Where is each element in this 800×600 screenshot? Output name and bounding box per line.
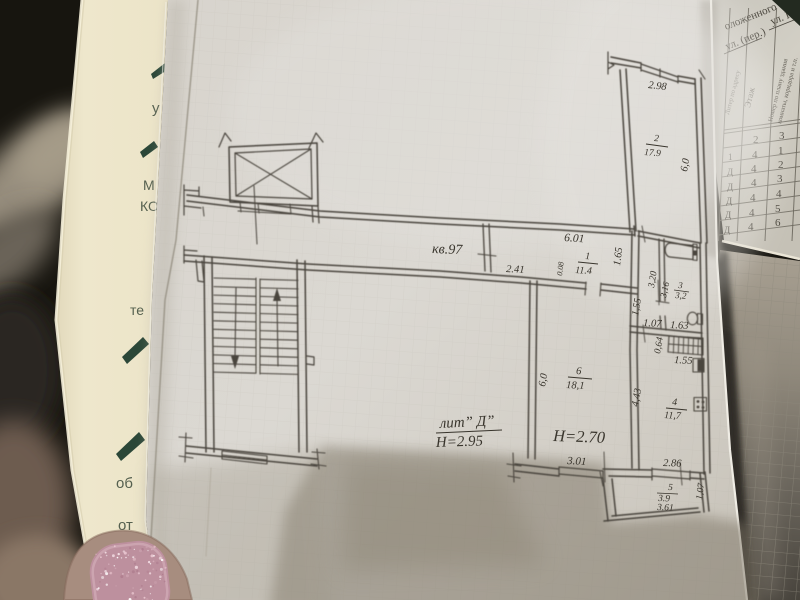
svg-text:1.55: 1.55 bbox=[674, 355, 693, 367]
svg-text:3.61: 3.61 bbox=[656, 503, 674, 514]
svg-text:17.9: 17.9 bbox=[644, 148, 662, 159]
svg-text:3,2: 3,2 bbox=[674, 290, 687, 301]
svg-text:3: 3 bbox=[777, 173, 783, 185]
svg-text:2.98: 2.98 bbox=[648, 80, 668, 93]
svg-text:2.41: 2.41 bbox=[506, 264, 525, 276]
svg-text:лит” Д”: лит” Д” bbox=[438, 413, 495, 432]
svg-text:11.4: 11.4 bbox=[575, 265, 592, 277]
svg-text:18,1: 18,1 bbox=[566, 380, 585, 392]
svg-text:кв.97: кв.97 bbox=[432, 242, 464, 258]
svg-text:0.08: 0.08 bbox=[555, 261, 566, 276]
svg-text:6.01: 6.01 bbox=[564, 232, 585, 245]
svg-text:2.86: 2.86 bbox=[663, 458, 682, 470]
svg-text:5: 5 bbox=[775, 203, 781, 215]
svg-text:1.07: 1.07 bbox=[643, 318, 663, 330]
svg-text:4: 4 bbox=[672, 397, 678, 408]
svg-text:11,7: 11,7 bbox=[664, 410, 682, 422]
svg-text:Н=2.95: Н=2.95 bbox=[435, 433, 484, 451]
svg-text:Н=2.70: Н=2.70 bbox=[552, 426, 606, 447]
svg-text:об: об bbox=[116, 475, 133, 492]
svg-text:М: М bbox=[143, 177, 155, 193]
svg-text:1: 1 bbox=[585, 251, 591, 262]
svg-text:1.63: 1.63 bbox=[670, 320, 689, 332]
svg-text:у: у bbox=[152, 100, 160, 117]
svg-text:2: 2 bbox=[654, 134, 660, 144]
svg-text:6: 6 bbox=[775, 217, 781, 229]
svg-text:1.65: 1.65 bbox=[612, 247, 625, 267]
svg-text:4: 4 bbox=[776, 188, 782, 200]
svg-text:те: те bbox=[130, 302, 144, 318]
svg-text:5: 5 bbox=[668, 483, 673, 493]
svg-text:3.01: 3.01 bbox=[566, 455, 587, 468]
